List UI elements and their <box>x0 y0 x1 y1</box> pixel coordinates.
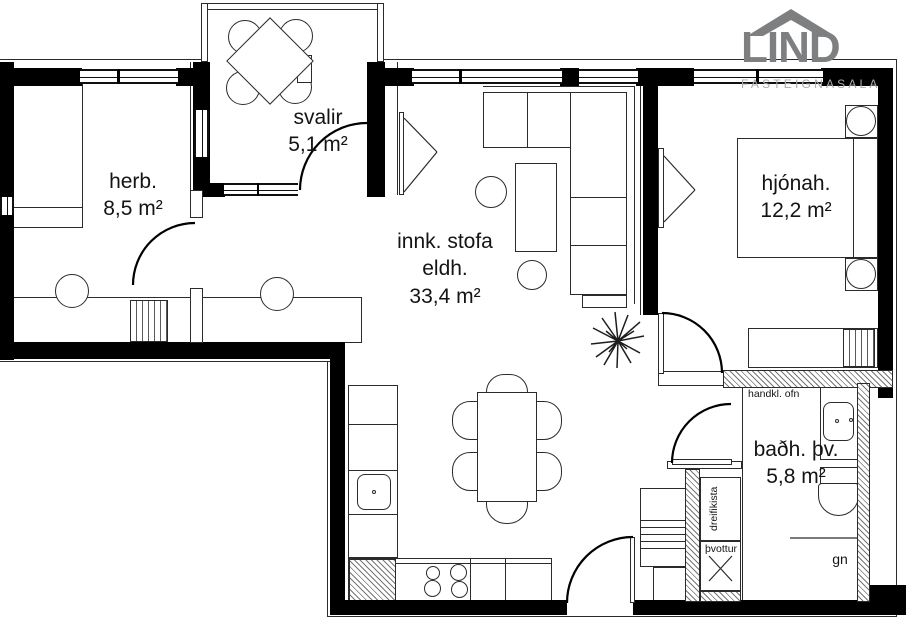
door-arc-entrance <box>567 537 633 603</box>
room-name: hjónah. <box>716 170 876 197</box>
door-arc-herb <box>133 223 195 285</box>
room-label-svalir: svalir 5,1 m² <box>248 104 388 159</box>
room-name: innk. stofa <box>360 228 530 255</box>
room-label-living: innk. stofa eldh. 33,4 m² <box>360 228 530 310</box>
tv-angle-lines <box>404 118 437 192</box>
logo-tagline: FASTEIGNASALA <box>741 77 881 91</box>
room-area: 8,5 m² <box>60 195 206 222</box>
room-label-hjonah: hjónah. 12,2 m² <box>716 170 876 225</box>
room-label-bath: baðh. þv. 5,8 m² <box>716 436 876 491</box>
plant-icon <box>591 312 644 368</box>
room-name: herb. <box>60 168 206 195</box>
logo-text: LIND <box>741 23 840 72</box>
room-area: 5,8 m² <box>716 463 876 490</box>
annotation-distribution-box: dreifikista <box>708 481 722 537</box>
annotation-shower: gn <box>820 550 860 568</box>
annotation-towel-radiator: handkl. ofn <box>748 388 828 402</box>
room-area: 5,1 m² <box>248 131 388 158</box>
room-label-herb: herb. 8,5 m² <box>60 168 206 223</box>
annotation-laundry: þvottur <box>701 543 741 557</box>
floor-plan: herb. 8,5 m² svalir 5,1 m² innk. stofa e… <box>0 0 906 620</box>
door-arc-bedroom <box>662 313 722 373</box>
room-area: 33,4 m² <box>360 283 530 310</box>
logo: LIND FASTEIGNASALA <box>733 4 899 98</box>
room-name: svalir <box>248 104 388 131</box>
tv-angle-lines <box>664 156 695 222</box>
room-area: 12,2 m² <box>716 197 876 224</box>
laundry-x-mark <box>709 556 732 581</box>
room-name: baðh. þv. <box>716 436 876 463</box>
room-name: eldh. <box>360 255 530 282</box>
